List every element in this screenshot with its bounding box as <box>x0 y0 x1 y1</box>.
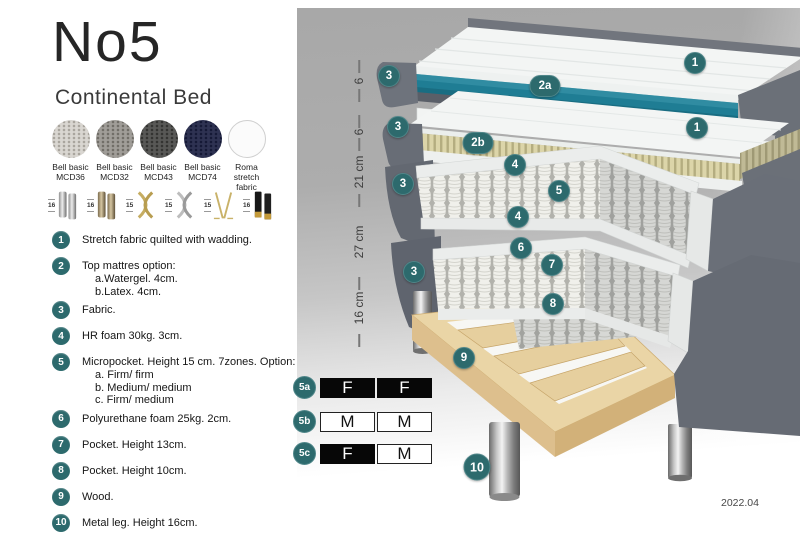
callout-2b: 2b <box>463 132 494 154</box>
callout-3: 3 <box>387 116 409 138</box>
dimension-label: 16 cm <box>352 292 366 325</box>
firmness-cell: M <box>377 412 432 432</box>
leg-icon-cross-gold <box>134 188 157 222</box>
fabric-swatch-mcd74: Bell basicMCD74 <box>182 120 223 193</box>
spec-number-badge: 8 <box>52 462 70 480</box>
fabric-swatch-mcd43: Bell basicMCD43 <box>138 120 179 193</box>
fabric-swatch-roma: Romastretch fabric <box>226 120 267 193</box>
spec-sub-option: b.Latex. 4cm. <box>82 286 178 299</box>
leg-option-4: 15 <box>165 188 202 222</box>
spec-item-5: 5Micropocket. Height 15 cm. 7zones. Opti… <box>52 353 300 407</box>
swatch-name: Bell basic <box>50 162 91 172</box>
spec-item-9: 9Wood. <box>52 488 300 506</box>
spec-list: 1Stretch fabric quilted with wadding. 2T… <box>52 231 300 533</box>
ruler-tick <box>358 89 360 102</box>
spec-text: Fabric. <box>82 304 116 316</box>
firmness-cell: F <box>320 444 375 464</box>
swatch-name: Bell basic <box>94 162 135 172</box>
callout-5: 5 <box>548 180 570 202</box>
spec-number-badge: 9 <box>52 488 70 506</box>
callout-8: 8 <box>542 293 564 315</box>
front-metal-leg <box>489 422 520 501</box>
callout-1: 1 <box>684 52 706 74</box>
firmness-badge: 5b <box>293 410 316 433</box>
spec-text: Metal leg. Height 16cm. <box>82 517 198 529</box>
swatch-name: Bell basic <box>182 162 223 172</box>
ruler-tick <box>358 194 360 207</box>
leg-icon-hairpin-gold <box>212 188 235 222</box>
leg-option-5: 15 <box>204 188 241 222</box>
firmness-row-5b: 5b M M <box>293 410 432 433</box>
ruler-tick <box>358 138 360 151</box>
callout-9: 9 <box>453 347 475 369</box>
swatch-code: MCD36 <box>50 172 91 182</box>
spec-number-badge: 3 <box>52 301 70 319</box>
leg-height: 16 <box>243 202 250 209</box>
callout-7: 7 <box>541 254 563 276</box>
callout-3: 3 <box>378 65 400 87</box>
spec-text: Micropocket. Height 15 cm. 7zones. Optio… <box>82 356 295 368</box>
spec-text: Polyurethane foam 25kg. 2cm. <box>82 413 231 425</box>
firmness-cell: M <box>377 444 432 464</box>
spec-text: Stretch fabric quilted with wadding. <box>82 234 252 246</box>
spec-text: Pocket. Height 13cm. <box>82 439 187 451</box>
ruler-tick <box>358 115 360 128</box>
spec-text: Pocket. Height 10cm. <box>82 465 187 477</box>
fabric-swatch-row: Bell basicMCD36 Bell basicMCD32 Bell bas… <box>50 120 267 193</box>
spec-number-badge: 1 <box>52 231 70 249</box>
dimension-label: 6 <box>352 129 366 136</box>
spec-item-6: 6Polyurethane foam 25kg. 2cm. <box>52 410 300 428</box>
spec-text: HR foam 30kg. 3cm. <box>82 330 182 342</box>
spec-sub-option: a. Firm/ firm <box>82 369 295 382</box>
spec-item-2: 2Top mattres option:a.Watergel. 4cm.b.La… <box>52 257 300 298</box>
callout-2a: 2a <box>530 75 561 97</box>
ruler-tick <box>358 60 360 73</box>
dimension-label: 21 cm <box>352 156 366 189</box>
dimension-label: 27 cm <box>352 226 366 259</box>
spec-item-4: 4HR foam 30kg. 3cm. <box>52 327 300 345</box>
product-spec-sheet: No5 Continental Bed Bell basicMCD36 Bell… <box>0 0 800 533</box>
swatch-name: Roma <box>226 162 267 172</box>
callout-4: 4 <box>507 206 529 228</box>
swatch-code: MCD43 <box>138 172 179 182</box>
swatch-code: MCD74 <box>182 172 223 182</box>
leg-height: 16 <box>48 202 55 209</box>
leg-option-6: 16 <box>243 188 280 222</box>
fabric-swatch-mcd32: Bell basicMCD32 <box>94 120 135 193</box>
spec-sub-option: c. Firm/ medium <box>82 394 295 407</box>
firmness-row-5c: 5c F M <box>293 442 432 465</box>
leg-height: 16 <box>87 202 94 209</box>
page-subtitle: Continental Bed <box>55 86 212 110</box>
callout-1: 1 <box>686 117 708 139</box>
leg-height: 15 <box>165 202 172 209</box>
leg-height: 15 <box>126 202 133 209</box>
callout-3: 3 <box>403 261 425 283</box>
fabric-swatch-icon <box>228 120 266 158</box>
spec-number-badge: 6 <box>52 410 70 428</box>
callout-6: 6 <box>510 237 532 259</box>
leg-option-3: 15 <box>126 188 163 222</box>
callout-3: 3 <box>392 173 414 195</box>
fabric-swatch-icon <box>52 120 90 158</box>
firmness-cell: M <box>320 412 375 432</box>
leg-icon-cylinder-bronze <box>95 188 118 222</box>
fabric-swatch-mcd36: Bell basicMCD36 <box>50 120 91 193</box>
spec-item-8: 8Pocket. Height 10cm. <box>52 462 300 480</box>
spec-item-10: 10Metal leg. Height 16cm. <box>52 514 300 532</box>
spec-item-1: 1Stretch fabric quilted with wadding. <box>52 231 300 249</box>
diagram-panel: 6 6 21 cm 27 cm 16 cm 1 3 2a 1 3 2b 4 3 … <box>297 8 800 533</box>
ruler-tick <box>358 277 360 290</box>
firmness-badge: 5c <box>293 442 316 465</box>
spec-number-badge: 2 <box>52 257 70 275</box>
ruler-tick <box>358 334 360 347</box>
spec-number-badge: 7 <box>52 436 70 454</box>
spec-item-7: 7Pocket. Height 13cm. <box>52 436 300 454</box>
spec-number-badge: 5 <box>52 353 70 371</box>
leg-height: 15 <box>204 202 211 209</box>
spec-sub-option: a.Watergel. 4cm. <box>82 273 178 286</box>
page-title: No5 <box>52 14 163 71</box>
leg-option-2: 16 <box>87 188 124 222</box>
firmness-row-5a: 5a F F <box>293 376 432 399</box>
firmness-cell: F <box>320 378 375 398</box>
leg-icon-cross-chrome <box>173 188 196 222</box>
leg-icon-black-brass <box>251 188 274 222</box>
leg-option-1: 16 <box>48 188 85 222</box>
fabric-swatch-icon <box>96 120 134 158</box>
callout-4: 4 <box>504 154 526 176</box>
swatch-name: Bell basic <box>138 162 179 172</box>
dimension-label: 6 <box>352 78 366 85</box>
spec-text: Top mattres option: <box>82 260 176 272</box>
fabric-swatch-icon <box>140 120 178 158</box>
leg-option-row: 16 16 15 15 <box>48 188 280 222</box>
spec-number-badge: 10 <box>52 514 70 532</box>
leg-icon-cylinder-chrome <box>56 188 79 222</box>
callout-10: 10 <box>464 454 491 481</box>
firmness-badge: 5a <box>293 376 316 399</box>
fabric-swatch-icon <box>184 120 222 158</box>
spec-text: Wood. <box>82 491 114 503</box>
back-right-leg <box>668 424 692 481</box>
version-date: 2022.04 <box>721 497 759 509</box>
spec-sub-option: b. Medium/ medium <box>82 382 295 395</box>
spec-number-badge: 4 <box>52 327 70 345</box>
firmness-cell: F <box>377 378 432 398</box>
swatch-code: MCD32 <box>94 172 135 182</box>
spec-item-3: 3Fabric. <box>52 301 300 319</box>
